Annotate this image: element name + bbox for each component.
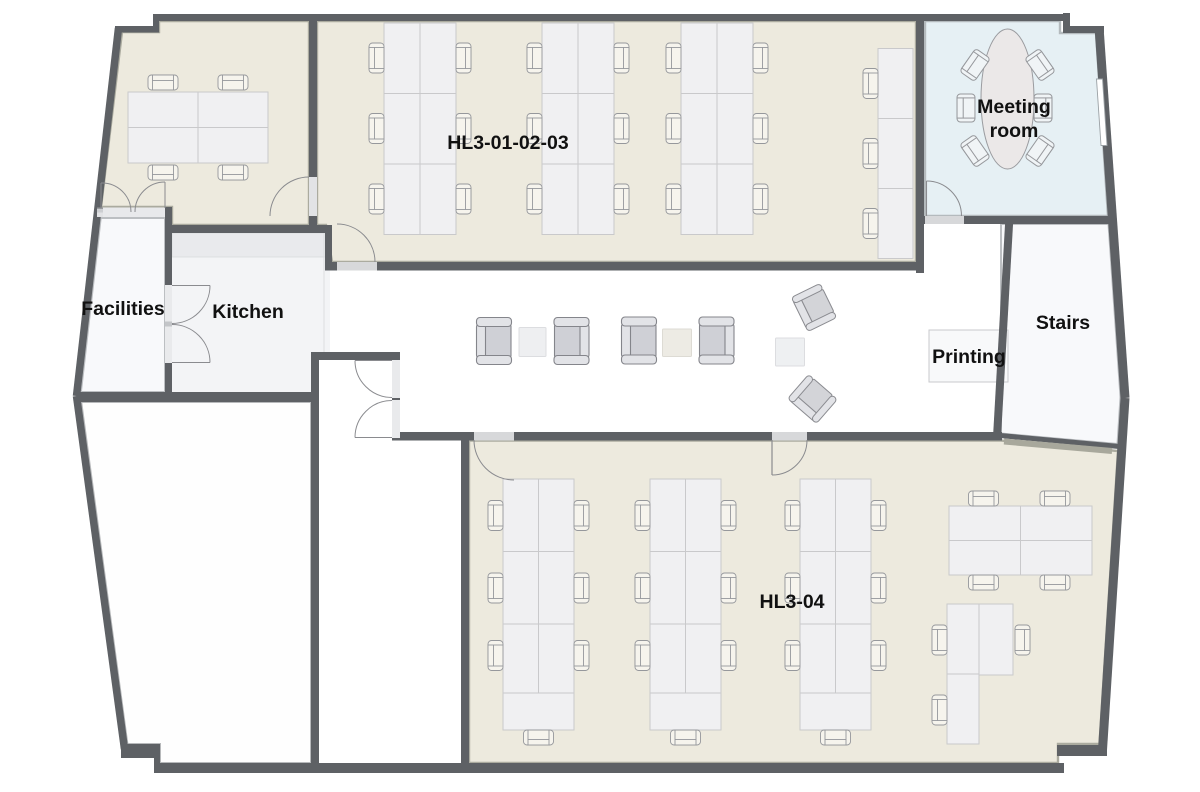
svg-text:Kitchen: Kitchen: [212, 301, 284, 323]
svg-text:room: room: [990, 120, 1039, 142]
svg-text:Printing: Printing: [932, 346, 1006, 368]
svg-text:HL3-04: HL3-04: [759, 591, 824, 613]
svg-text:Facilities: Facilities: [81, 298, 165, 320]
svg-text:HL3-01-02-03: HL3-01-02-03: [447, 132, 569, 154]
svg-text:Meeting: Meeting: [977, 96, 1051, 118]
svg-text:Stairs: Stairs: [1036, 312, 1090, 334]
